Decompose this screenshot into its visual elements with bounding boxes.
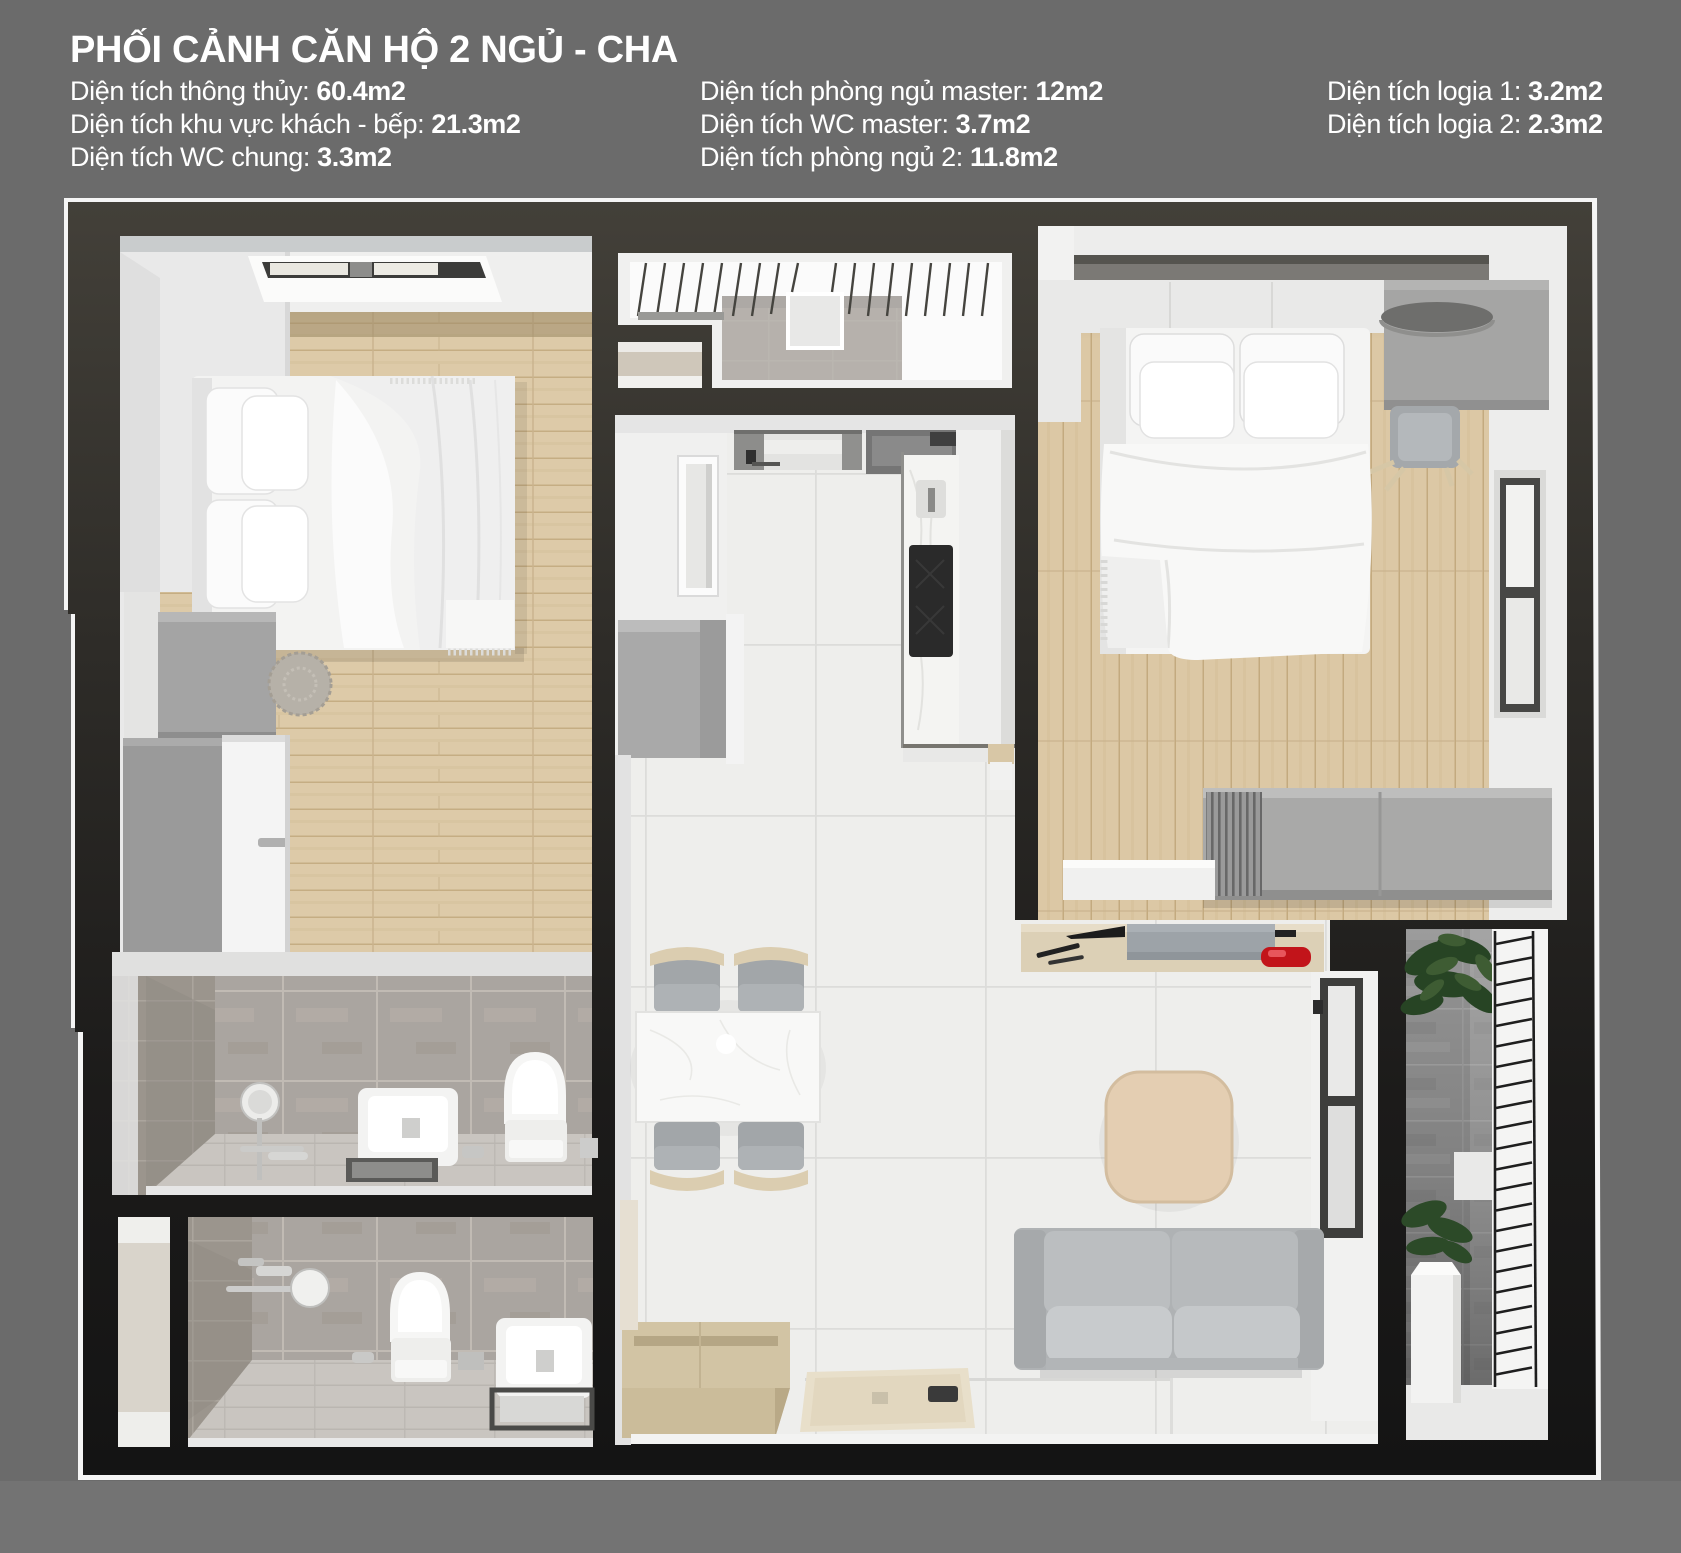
svg-text:Diện tích phòng ngủ master: 12: Diện tích phòng ngủ master: 12m2 — [700, 76, 1103, 106]
svg-text:Diện tích WC chung: 3.3m2: Diện tích WC chung: 3.3m2 — [70, 142, 392, 172]
svg-text:Diện tích khu vực khách - bếp:: Diện tích khu vực khách - bếp: 21.3m2 — [70, 109, 521, 139]
svg-text:PHỐI CẢNH CĂN HỘ 2 NGỦ - CHA: PHỐI CẢNH CĂN HỘ 2 NGỦ - CHA — [70, 26, 678, 71]
svg-text:Diện tích phòng ngủ 2: 11.8m2: Diện tích phòng ngủ 2: 11.8m2 — [700, 142, 1058, 172]
svg-text:Diện tích thông thủy: 60.4m2: Diện tích thông thủy: 60.4m2 — [70, 76, 406, 106]
svg-text:Diện tích logia 2: 2.3m2: Diện tích logia 2: 2.3m2 — [1327, 109, 1603, 139]
svg-text:Diện tích logia 1: 3.2m2: Diện tích logia 1: 3.2m2 — [1327, 76, 1603, 106]
svg-text:Diện tích WC master: 3.7m2: Diện tích WC master: 3.7m2 — [700, 109, 1030, 139]
